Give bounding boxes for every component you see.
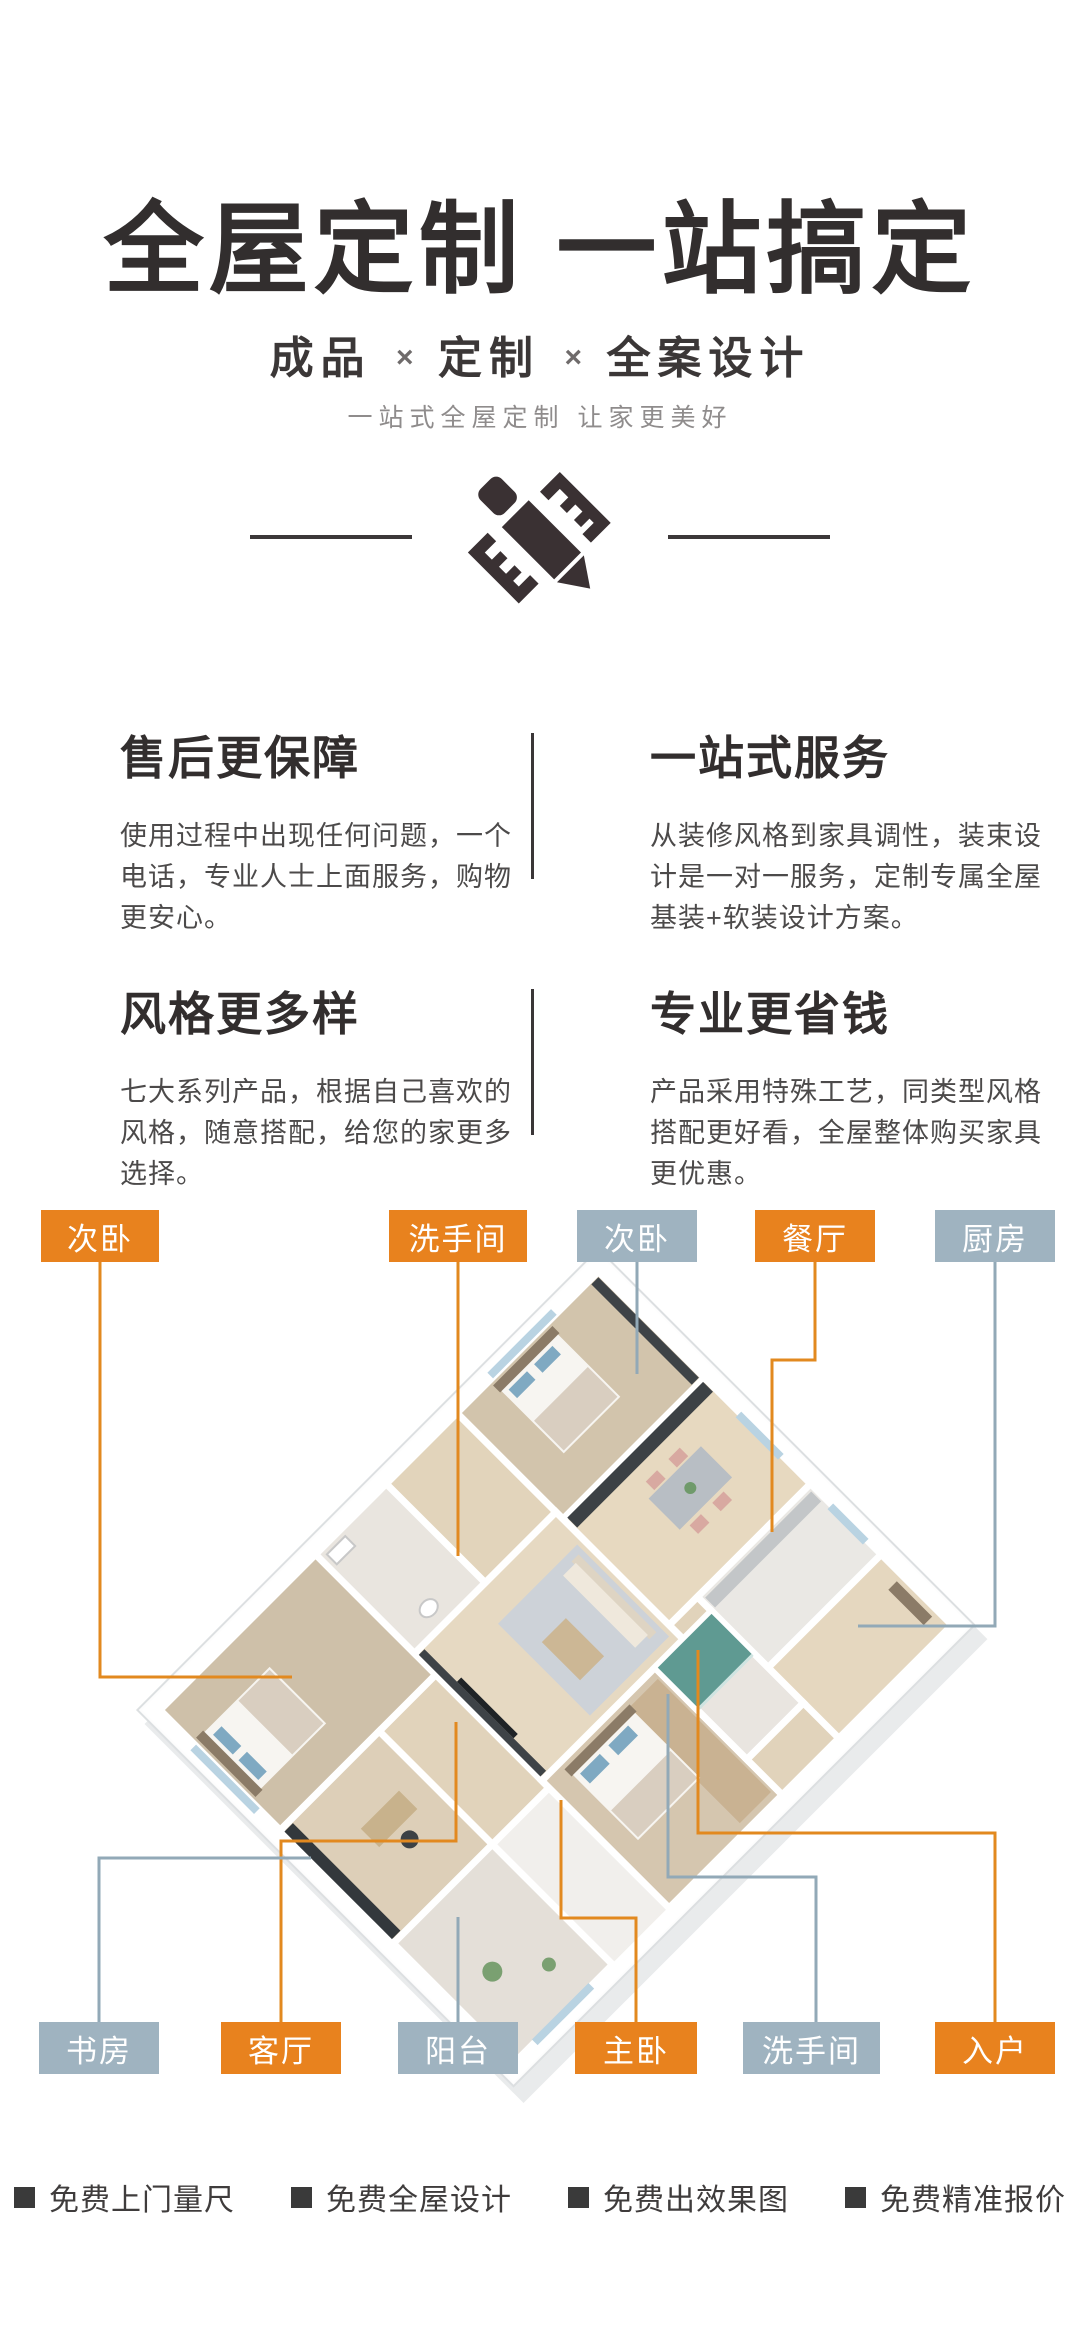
benefit-label: 免费精准报价 bbox=[880, 2175, 1066, 2219]
bullet-square-icon bbox=[845, 2187, 866, 2208]
benefit-label: 免费上门量尺 bbox=[49, 2175, 235, 2219]
multiply-separator: × bbox=[564, 341, 582, 374]
room-label: 厨房 bbox=[935, 1210, 1055, 1262]
multiply-separator: × bbox=[396, 341, 414, 374]
room-label: 次卧 bbox=[41, 1210, 159, 1262]
bullet-square-icon bbox=[14, 2187, 35, 2208]
floorplan-illustration bbox=[0, 1180, 1080, 2120]
pencil-eraser bbox=[475, 473, 520, 518]
room-label: 洗手间 bbox=[389, 1210, 527, 1262]
subtitle-part: 全案设计 bbox=[606, 334, 810, 383]
room-label: 书房 bbox=[39, 2022, 159, 2074]
feature-title: 售后更保障 bbox=[120, 722, 520, 788]
feature-desc: 从装修风格到家具调性，装束设计是一对一服务，定制专属全屋基装+软装设计方案。 bbox=[650, 816, 1050, 939]
feature-desc: 产品采用特殊工艺，同类型风格搭配更好看，全屋整体购买家具更优惠。 bbox=[650, 1072, 1050, 1195]
room-label: 客厅 bbox=[221, 2022, 341, 2074]
room-label: 洗手间 bbox=[743, 2022, 880, 2074]
decorative-line-right bbox=[668, 535, 830, 539]
footer-benefits: 免费上门量尺 免费全屋设计 免费出效果图 免费精准报价 bbox=[0, 2172, 1080, 2222]
feature-desc: 七大系列产品，根据自己喜欢的风格，随意搭配，给您的家更多选择。 bbox=[120, 1072, 520, 1195]
page-title: 全屋定制 一站搞定 bbox=[0, 168, 1080, 313]
bullet-square-icon bbox=[291, 2187, 312, 2208]
hero-icon-row bbox=[0, 452, 1080, 622]
benefit-label: 免费出效果图 bbox=[603, 2175, 789, 2219]
subtitle: 成品 × 定制 × 全案设计 bbox=[0, 322, 1080, 386]
footer-benefit: 免费上门量尺 bbox=[14, 2175, 235, 2219]
room-label: 入户 bbox=[935, 2022, 1055, 2074]
feature-block: 风格更多样 七大系列产品，根据自己喜欢的风格，随意搭配，给您的家更多选择。 bbox=[120, 978, 520, 1195]
feature-desc: 使用过程中出现任何问题，一个电话，专业人士上面服务，购物更安心。 bbox=[120, 816, 520, 939]
column-divider bbox=[531, 989, 534, 1135]
benefit-label: 免费全屋设计 bbox=[326, 2175, 512, 2219]
bullet-square-icon bbox=[568, 2187, 589, 2208]
feature-title: 一站式服务 bbox=[650, 722, 1050, 788]
subtitle-part: 成品 bbox=[270, 334, 372, 383]
room-label: 餐厅 bbox=[755, 1210, 875, 1262]
column-divider bbox=[531, 733, 534, 879]
decorative-line-left bbox=[250, 535, 412, 539]
room-label: 次卧 bbox=[577, 1210, 697, 1262]
footer-benefit: 免费出效果图 bbox=[568, 2175, 789, 2219]
room-label: 主卧 bbox=[575, 2022, 697, 2074]
feature-title: 专业更省钱 bbox=[650, 978, 1050, 1044]
tagline: 一站式全屋定制 让家更美好 bbox=[0, 398, 1080, 434]
design-pencil-icon bbox=[456, 453, 624, 621]
footer-benefit: 免费全屋设计 bbox=[291, 2175, 512, 2219]
room-label: 阳台 bbox=[398, 2022, 518, 2074]
feature-block: 一站式服务 从装修风格到家具调性，装束设计是一对一服务，定制专属全屋基装+软装设… bbox=[650, 722, 1050, 939]
footer-benefit: 免费精准报价 bbox=[845, 2175, 1066, 2219]
subtitle-part: 定制 bbox=[438, 334, 540, 383]
promo-page: 全屋定制 一站搞定 成品 × 定制 × 全案设计 一站式全屋定制 让家更美好 bbox=[0, 0, 1080, 2345]
feature-block: 专业更省钱 产品采用特殊工艺，同类型风格搭配更好看，全屋整体购买家具更优惠。 bbox=[650, 978, 1050, 1195]
feature-title: 风格更多样 bbox=[120, 978, 520, 1044]
feature-block: 售后更保障 使用过程中出现任何问题，一个电话，专业人士上面服务，购物更安心。 bbox=[120, 722, 520, 939]
